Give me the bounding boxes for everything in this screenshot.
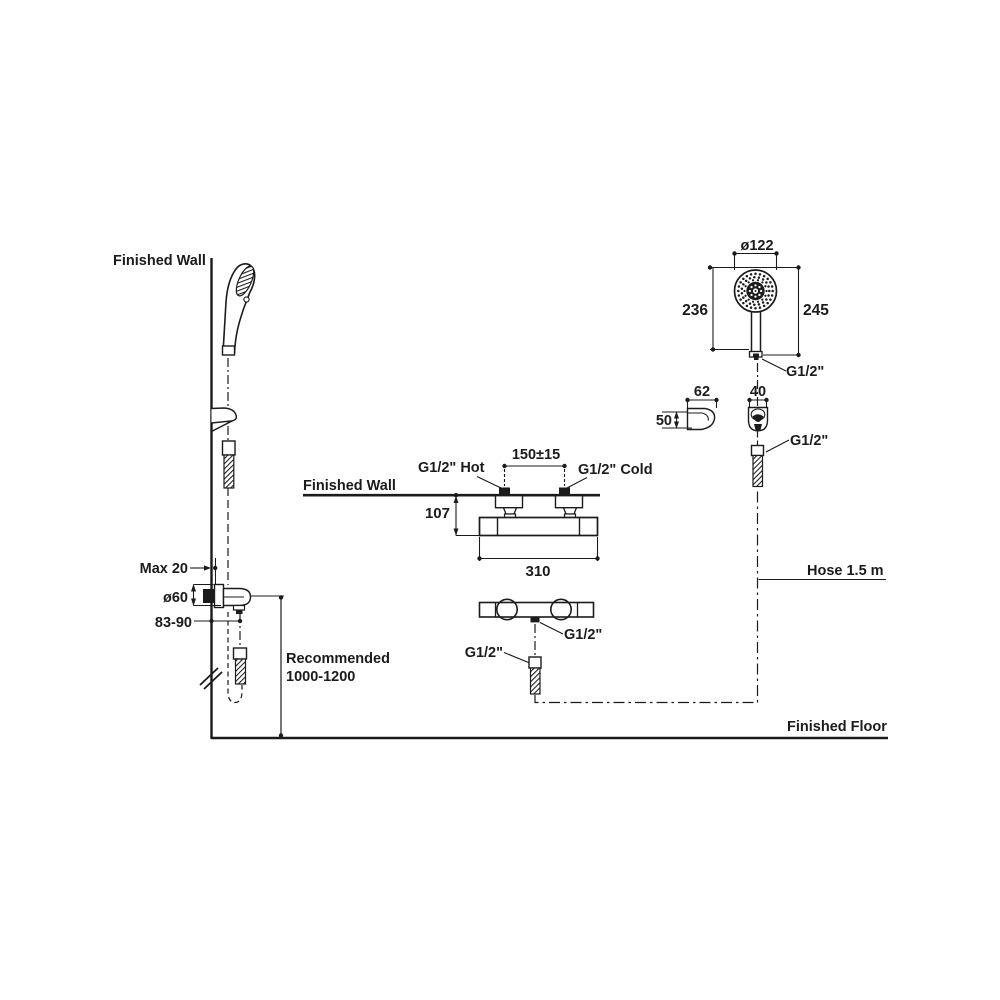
spray-nozzle-dot — [762, 301, 765, 304]
handle-end-black — [753, 354, 759, 358]
spray-nozzle-dot — [771, 294, 774, 297]
d310-dot-right — [595, 556, 599, 560]
cold-union — [556, 496, 583, 508]
spray-nozzle-dot — [754, 307, 757, 310]
recommended-dot-top — [279, 595, 283, 599]
spray-nozzle-dot — [742, 302, 745, 305]
hose-nut-mid — [529, 657, 541, 668]
hose-end-mid — [531, 668, 541, 694]
spray-nozzle-dot — [752, 301, 754, 303]
spray-nozzle-dot — [768, 290, 771, 293]
spray-nozzle-dot — [745, 300, 748, 303]
spray-nozzle-dot — [750, 294, 752, 296]
wall-bracket-side-icon — [688, 409, 715, 430]
spray-nozzle-dot — [746, 305, 749, 308]
spray-nozzle-dot — [766, 302, 769, 305]
d62-dot-left — [685, 398, 689, 402]
hose-nut-right — [752, 446, 764, 456]
d245-label: 245 — [803, 302, 829, 319]
spray-center-dot — [755, 290, 757, 292]
spray-nozzle-dot — [764, 285, 766, 287]
spray-nozzle-dot — [769, 298, 772, 301]
spray-nozzle-dot — [742, 278, 745, 281]
dia122-dot-left — [732, 251, 736, 255]
break-mark-1 — [200, 668, 218, 685]
d107-label: 107 — [425, 505, 450, 522]
spray-nozzle-dot — [758, 276, 761, 279]
spray-nozzle-dot — [738, 294, 741, 297]
spray-nozzle-dot — [748, 281, 750, 283]
spray-nozzle-dot — [744, 295, 746, 297]
d107-arrow-down — [454, 529, 459, 536]
handshower-hook-detail — [244, 297, 249, 302]
elbow-outlet-tip — [236, 610, 243, 614]
g12-hose-right-leader — [766, 440, 789, 452]
ref-dot-left — [708, 265, 712, 269]
spray-nozzle-dot — [761, 281, 763, 283]
spray-nozzle-dot — [741, 287, 744, 290]
spray-nozzle-dot — [748, 299, 750, 301]
elbow-wall-plate — [215, 585, 224, 608]
g12-handle-leader — [762, 359, 786, 371]
dia60-arrow-down — [191, 599, 196, 607]
hot-label: G1/2" Hot — [418, 460, 485, 476]
spray-nozzle-dot — [739, 298, 742, 301]
cold-union-neck — [564, 508, 577, 514]
spray-nozzle-dot — [762, 278, 765, 281]
d150-dot-right — [562, 464, 566, 468]
spray-nozzle-dot — [745, 280, 748, 283]
spray-nozzle-dot — [749, 302, 752, 305]
break-mark-2 — [204, 672, 222, 689]
d40-label: 40 — [750, 384, 766, 400]
g12-hose-mid-label: G1/2" — [465, 645, 503, 661]
handle-tip — [754, 357, 759, 360]
spray-nozzle-dot — [771, 285, 774, 288]
spray-nozzle-dot — [754, 273, 757, 276]
spray-nozzle-dot — [765, 281, 768, 284]
spray-nozzle-dot — [742, 296, 745, 299]
spray-nozzle-dot — [758, 286, 760, 288]
spray-nozzle-dot — [752, 279, 754, 281]
spray-nozzle-dot — [754, 284, 756, 286]
spray-nozzle-dot — [759, 306, 762, 309]
hose-label: Hose 1.5 m — [807, 563, 884, 579]
spray-nozzle-dot — [757, 279, 759, 281]
spray-nozzle-dot — [763, 275, 766, 278]
spray-nozzle-dot — [758, 294, 760, 296]
hose-end-left2 — [236, 659, 246, 684]
spray-nozzle-dot — [765, 298, 768, 301]
hot-union-neck — [504, 508, 517, 514]
d62-label: 62 — [694, 384, 710, 400]
d236-label: 236 — [682, 302, 708, 319]
middle-dimensions — [454, 464, 600, 561]
spray-nozzle-dot — [765, 290, 767, 292]
recommended-dot-bottom — [279, 733, 283, 737]
spray-nozzle-dot — [742, 283, 745, 286]
spray-nozzle-dot — [750, 306, 753, 309]
dia60-arrow-up — [191, 584, 196, 592]
spray-nozzle-dot — [738, 285, 741, 288]
elbow-outlet — [234, 606, 245, 611]
spray-nozzle-dot — [764, 295, 766, 297]
handshower-on-rail — [200, 264, 257, 703]
diagram-canvas: Finished Wall Finished Wall Finished Flo… — [0, 0, 1000, 1000]
d62-dot-right — [714, 398, 718, 402]
spray-nozzle-dot — [744, 285, 746, 287]
d8390-dot-hose — [238, 619, 242, 623]
spray-nozzle-dot — [750, 273, 753, 276]
recommended-label-line2: 1000-1200 — [286, 669, 355, 685]
installation-diagram: Finished Wall Finished Wall Finished Flo… — [0, 0, 1000, 1000]
hot-inlet-black — [499, 488, 510, 496]
g12-hose-right-label: G1/2" — [790, 433, 828, 449]
cold-leader — [566, 478, 587, 489]
dia122-label: ø122 — [740, 238, 773, 254]
spray-nozzle-dot — [767, 285, 770, 288]
d8390-label: 83-90 — [155, 615, 192, 631]
finished-floor-label: Finished Floor — [787, 719, 887, 735]
spray-nozzle-dot — [759, 273, 762, 276]
spray-nozzle-dot — [753, 276, 756, 279]
spray-nozzle-dot — [766, 278, 769, 281]
cold-label: G1/2" Cold — [578, 462, 653, 478]
finished-wall-top-label: Finished Wall — [113, 253, 206, 269]
hose-nut-left2 — [234, 648, 247, 659]
spray-nozzle-dot — [758, 303, 761, 306]
spray-nozzle-dot — [753, 304, 756, 307]
g12-hose-mid-leader — [504, 653, 529, 663]
cold-inlet-black — [559, 488, 570, 496]
spray-nozzle-dot — [750, 286, 752, 288]
spray-nozzle-dot — [741, 292, 744, 295]
spray-nozzle-dot — [754, 295, 756, 297]
recommended-label-line1: Recommended — [286, 651, 390, 667]
spray-nozzle-dot — [743, 290, 745, 292]
max20-arrow — [204, 565, 211, 570]
dia60-label: ø60 — [163, 590, 188, 606]
spray-nozzle-dot — [763, 305, 766, 308]
mixer-outlet-nub — [531, 617, 540, 623]
d107-arrow-up — [454, 496, 459, 503]
max20-label: Max 20 — [140, 561, 188, 577]
spray-nozzle-dot — [739, 281, 742, 284]
finished-wall-mid-label: Finished Wall — [303, 478, 396, 494]
spray-nozzle-dot — [767, 294, 770, 297]
g12-outlet-label: G1/2" — [564, 627, 602, 643]
max20-dot — [213, 566, 217, 570]
d310-dot-left — [477, 556, 481, 560]
hose-end-left — [224, 455, 234, 488]
d50-label: 50 — [656, 413, 672, 429]
spray-nozzle-dot — [760, 290, 762, 292]
hot-leader — [477, 477, 502, 489]
spray-nozzle-dot — [749, 290, 751, 292]
spray-nozzle-dot — [737, 290, 740, 293]
d8390-dot-wall — [209, 619, 213, 623]
handshower-inlet-cap — [223, 346, 235, 355]
spray-nozzle-dot — [746, 275, 749, 278]
spray-nozzle-dot — [749, 277, 752, 280]
dia122-dot-right — [774, 251, 778, 255]
d150-dot-left — [502, 464, 506, 468]
g12-outlet-leader — [540, 623, 563, 635]
g12-handle-label: G1/2" — [786, 364, 824, 380]
rail-bracket-icon — [212, 408, 237, 423]
d150-label: 150±15 — [512, 447, 560, 463]
elbow-inlet-black — [203, 589, 215, 603]
hose-end-right — [753, 456, 763, 487]
spray-nozzle-dot — [761, 299, 763, 301]
spray-nozzle-dot — [769, 281, 772, 284]
hose-nut-left — [223, 441, 236, 455]
hot-union — [496, 496, 523, 508]
spray-nozzle-dot — [757, 301, 759, 303]
d310-label: 310 — [525, 563, 550, 580]
spray-nozzle-dot — [771, 290, 774, 293]
